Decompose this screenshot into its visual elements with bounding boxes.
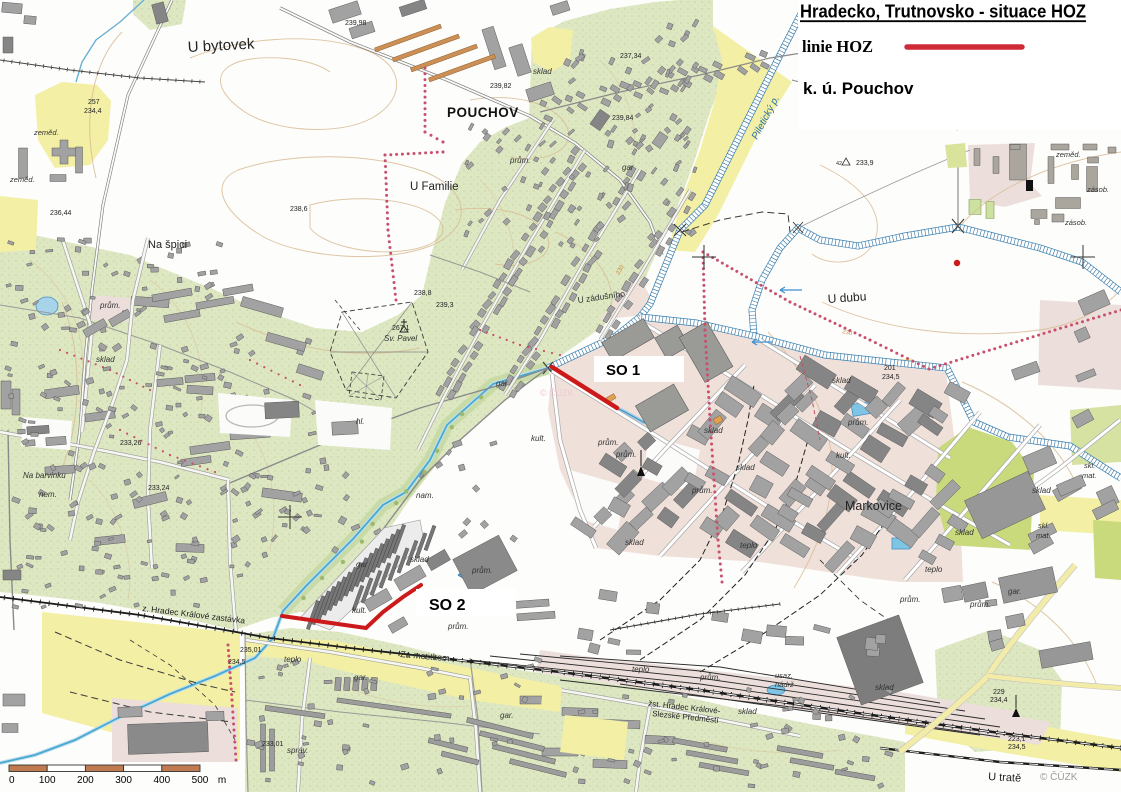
svg-text:234,4: 234,4 [84,108,102,115]
svg-text:prům.: prům. [615,450,636,459]
svg-text:prům.: prům. [847,418,868,427]
svg-text:300: 300 [115,775,132,786]
svg-text:239,82: 239,82 [490,83,512,90]
svg-text:239,84: 239,84 [612,115,634,122]
svg-text:gar.: gar. [500,711,514,720]
svg-text:sklad: sklad [875,683,894,692]
svg-text:prům.: prům. [471,566,492,575]
svg-text:239,98: 239,98 [345,20,367,27]
svg-text:zeměd.: zeměd. [33,128,59,137]
svg-text:teplo: teplo [284,655,302,664]
svg-text:nam.: nam. [416,491,434,500]
svg-text:238,8: 238,8 [414,290,432,297]
svg-text:Sv. Pavel: Sv. Pavel [384,334,417,343]
svg-text:201: 201 [884,365,896,372]
svg-text:hl.: hl. [356,417,364,426]
svg-text:229: 229 [993,689,1005,696]
svg-text:skl.: skl. [1038,521,1049,530]
svg-text:100: 100 [39,775,56,786]
svg-text:sklad: sklad [704,426,723,435]
svg-text:U Familie: U Familie [410,181,459,193]
svg-text:42: 42 [836,161,842,167]
svg-text:kult.: kult. [836,451,851,460]
svg-text:teplo: teplo [632,665,650,674]
svg-text:233,9: 233,9 [856,160,874,167]
svg-text:k. ú. Pouchov: k. ú. Pouchov [803,79,914,98]
svg-text:234,4: 234,4 [990,697,1008,704]
svg-text:267,1: 267,1 [392,325,410,332]
svg-text:gar.: gar. [354,673,368,682]
svg-text:sklad: sklad [625,538,644,547]
svg-text:nem.: nem. [39,490,57,499]
svg-text:sklad: sklad [738,707,757,716]
svg-text:gar: gar [622,163,634,172]
svg-text:kult.: kult. [352,606,367,615]
svg-text:kult.: kult. [531,434,546,443]
svg-text:Markovice: Markovice [845,499,902,513]
svg-text:sklad: sklad [96,355,115,364]
svg-text:233,01: 233,01 [262,741,284,748]
svg-text:233,26: 233,26 [120,440,142,447]
svg-text:0: 0 [9,775,15,786]
svg-text:233,24: 233,24 [148,485,170,492]
svg-text:237,34: 237,34 [620,53,642,60]
svg-text:234,5: 234,5 [882,374,900,381]
svg-text:Hradecko, Trutnovsko - situace: Hradecko, Trutnovsko - situace HOZ [800,2,1086,22]
svg-text:sklad: sklad [955,528,974,537]
svg-text:234,5: 234,5 [228,659,246,666]
svg-text:236,44: 236,44 [50,210,72,217]
svg-text:sklad: sklad [533,67,552,76]
svg-text:prům.: prům. [899,595,920,604]
svg-text:správ.: správ. [287,746,308,755]
svg-text:linie HOZ: linie HOZ [802,37,873,56]
svg-text:gar.: gar. [1008,587,1022,596]
svg-text:sklad: sklad [410,555,429,564]
svg-text:200: 200 [77,775,94,786]
svg-text:SO 2: SO 2 [429,597,466,614]
svg-text:223,1: 223,1 [1008,736,1026,743]
svg-text:m: m [218,775,226,786]
svg-text:prům.: prům. [969,600,990,609]
svg-text:Na špici: Na špici [148,239,187,251]
svg-text:Na barvinku: Na barvinku [23,471,66,480]
svg-text:sklad: sklad [1032,486,1051,495]
svg-text:SO 1: SO 1 [606,362,640,379]
svg-text:prům.: prům. [699,673,720,682]
svg-text:mat.: mat. [1082,471,1097,480]
svg-text:gar: gar [496,379,508,388]
svg-text:zásob.: zásob. [1086,185,1109,194]
svg-text:POUCHOV: POUCHOV [447,105,519,120]
svg-text:234,5: 234,5 [1008,744,1026,751]
svg-text:usaz.: usaz. [775,671,793,680]
svg-text:prům.: prům. [447,622,468,631]
svg-text:U dubu: U dubu [827,289,867,306]
svg-text:prům.: prům. [99,301,120,310]
svg-text:zásob.: zásob. [1064,218,1087,227]
svg-text:skl.: skl. [1084,461,1095,470]
svg-text:zeměd.: zeměd. [9,175,35,184]
svg-text:© ČÚZK: © ČÚZK [1040,770,1078,783]
svg-text:238,6: 238,6 [290,206,308,213]
svg-text:235,01: 235,01 [240,647,262,654]
svg-text:teplo: teplo [925,565,943,574]
svg-text:prům.: prům. [691,486,712,495]
svg-text:© ČÚZK: © ČÚZK [540,388,574,398]
svg-text:sklad: sklad [736,463,755,472]
svg-text:U tratě: U tratě [988,771,1022,785]
svg-text:teplo: teplo [740,541,758,550]
svg-text:sklad: sklad [832,376,851,385]
svg-text:gar: gar [356,560,368,569]
svg-text:500: 500 [192,775,209,786]
svg-text:mat.: mat. [1036,531,1051,540]
svg-text:zeměd.: zeměd. [1055,150,1081,159]
svg-text:nádrž: nádrž [775,680,794,689]
svg-text:U bytovek: U bytovek [187,36,255,56]
svg-text:prům.: prům. [597,438,618,447]
svg-text:400: 400 [153,775,170,786]
svg-text:257: 257 [88,99,100,106]
svg-text:prům.: prům. [509,156,530,165]
svg-text:239,3: 239,3 [436,302,454,309]
